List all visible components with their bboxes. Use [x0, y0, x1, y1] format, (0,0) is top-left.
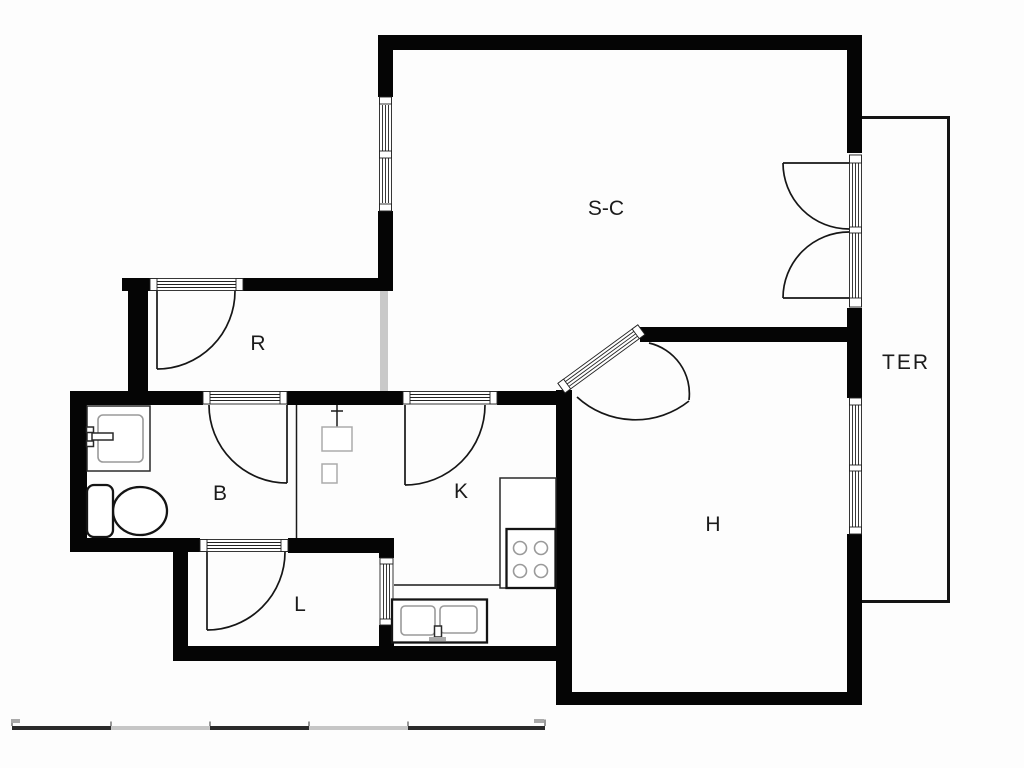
floor-plan: S-C TER R B K L H [0, 0, 1024, 768]
window-jamb [150, 279, 157, 291]
wall-segment [378, 35, 393, 97]
door-l [207, 552, 285, 630]
window-glass-line [567, 334, 636, 384]
door-arc [157, 291, 235, 369]
wall-segment [378, 35, 862, 50]
door-arc [783, 232, 849, 298]
door-band-r [150, 279, 243, 291]
scale-segment [12, 726, 111, 730]
window-jamb [280, 392, 287, 405]
kitchen-fixtures [392, 478, 556, 643]
room-label-ter: TER [882, 351, 930, 374]
heater-box [322, 427, 352, 451]
wall-segment [128, 278, 148, 391]
room-label-sc: S-C [588, 197, 624, 220]
window-jamb [850, 398, 862, 405]
door-band-l [200, 540, 288, 552]
wall-segment [173, 646, 572, 661]
wall-segment [287, 391, 403, 405]
partition-gray-band [380, 291, 388, 391]
faucet-icon [435, 626, 442, 637]
window-divider [380, 151, 392, 158]
scale-segment [408, 726, 545, 730]
scale-segment [309, 726, 408, 730]
wall-segment [243, 278, 393, 291]
window-jamb [380, 558, 393, 564]
wall-segment [288, 538, 394, 553]
scale-end-label [534, 719, 544, 723]
wall-segment [847, 35, 862, 153]
wall-segment [70, 391, 87, 552]
door-arc [783, 163, 849, 229]
window-jamb [490, 392, 497, 405]
fixtures [87, 405, 557, 643]
window-jamb [380, 97, 392, 104]
window-divider [850, 227, 862, 233]
toilet [87, 485, 167, 537]
door-r [157, 291, 235, 369]
window-jamb [850, 527, 862, 534]
window-jamb [281, 540, 288, 552]
door-band-k [403, 392, 497, 405]
wall-segment [497, 391, 565, 405]
wall-segment [379, 538, 394, 558]
floor-plan-drawing: S-C TER R B K L H [0, 0, 1024, 768]
water-heater [322, 405, 352, 483]
room-label-k: K [454, 480, 468, 503]
toilet-bowl [113, 487, 167, 535]
door-arc [209, 405, 287, 483]
door-arc [577, 397, 689, 420]
stove [507, 529, 556, 588]
scale-segment [111, 726, 210, 730]
bathroom-sink [87, 406, 151, 471]
door-k [405, 405, 485, 485]
faucet-handle-icon [87, 427, 94, 433]
french-door-bottom [783, 232, 849, 298]
room-label-l: L [294, 593, 306, 616]
door-diagonal-h [577, 343, 689, 420]
toilet-tank [87, 485, 113, 537]
door-arc [649, 343, 689, 400]
wall-segment [847, 308, 862, 398]
room-label-r: R [250, 332, 265, 355]
window-french-doors [850, 155, 862, 307]
window-jamb [380, 204, 392, 211]
door-band-b [203, 392, 287, 405]
wall-segment [70, 538, 200, 552]
door-band-diagonal [558, 325, 645, 393]
window-jamb [850, 298, 862, 307]
window-jamb [403, 392, 410, 405]
window-h-right [850, 398, 862, 534]
window-jamb [200, 540, 207, 552]
faucet-icon [92, 433, 113, 440]
wall-segment [847, 534, 862, 705]
scale-start-label [11, 719, 20, 723]
sink-micro-label [429, 637, 446, 641]
door-arc [207, 552, 285, 630]
french-door-top [783, 163, 849, 229]
wall-segment [556, 692, 862, 705]
window-jamb [236, 279, 243, 291]
wall-segment [173, 552, 188, 661]
window-glass-line [569, 336, 638, 386]
room-label-b: B [213, 482, 227, 505]
window-glass-line [565, 331, 634, 381]
door-arc [405, 405, 485, 485]
door-b [209, 405, 287, 483]
wall-segment [640, 327, 862, 342]
window-jamb [203, 392, 210, 405]
window-jamb [850, 155, 862, 163]
room-label-h: H [705, 513, 720, 536]
window-divider [850, 465, 862, 471]
shaft-box [322, 464, 337, 483]
faucet-handle-icon [87, 441, 94, 447]
scale-segment [210, 726, 309, 730]
wall-segment [556, 390, 572, 705]
wall-segment [72, 391, 203, 405]
scale-bar [11, 719, 545, 730]
window-sc-left [380, 97, 392, 211]
